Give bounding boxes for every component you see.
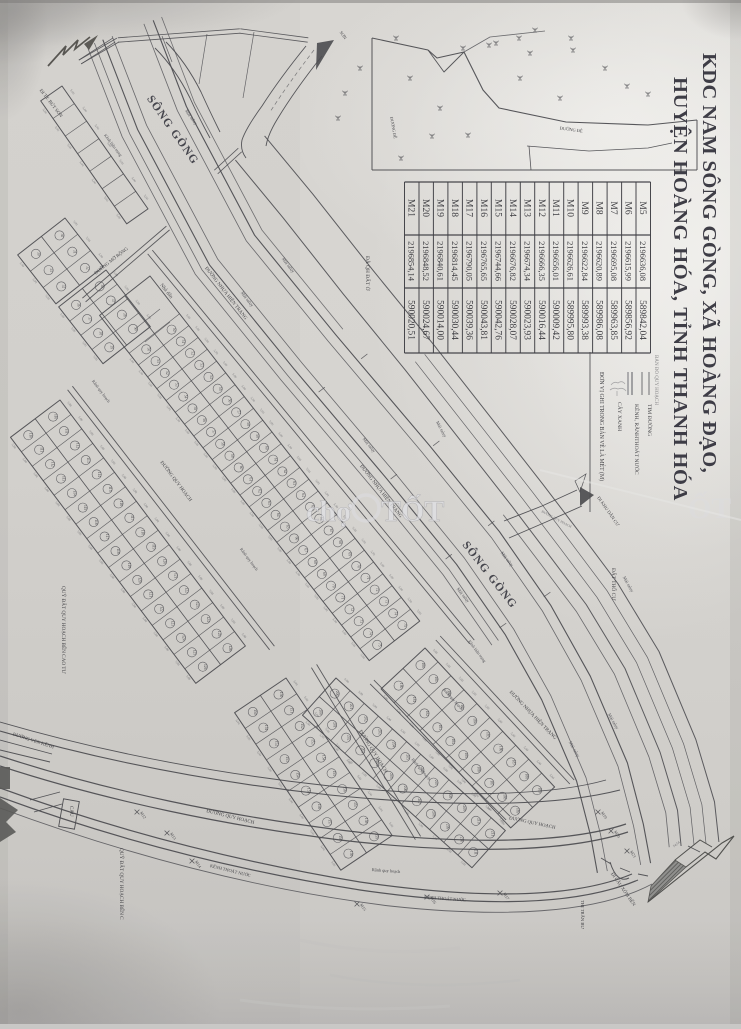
- svg-text:KDC NAM SÔNG GÒNG, XÃ HOÀNG ĐẠ: KDC NAM SÔNG GÒNG, XÃ HOÀNG ĐẠO,: [698, 53, 722, 473]
- svg-text:63: 63: [292, 481, 296, 485]
- svg-text:126: 126: [203, 664, 207, 670]
- svg-text:114: 114: [72, 490, 76, 495]
- svg-text:64: 64: [276, 513, 280, 517]
- svg-text:151: 151: [290, 708, 294, 714]
- svg-text:113: 113: [61, 476, 65, 481]
- svg-text:156: 156: [317, 804, 321, 810]
- svg-text:153: 153: [285, 756, 289, 762]
- svg-text:ĐÃ QH ĐẤT Ở: ĐÃ QH ĐẤT Ở: [364, 256, 372, 292]
- svg-text:75: 75: [403, 623, 407, 627]
- svg-text:115: 115: [83, 505, 87, 510]
- svg-text:M6: M6: [623, 201, 633, 214]
- svg-text:116: 116: [119, 501, 123, 506]
- svg-text:KÊNH, RÃNHTHOÁT NƯỚC: KÊNH, RÃNHTHOÁT NƯỚC: [633, 404, 641, 475]
- svg-text:159: 159: [349, 851, 353, 857]
- svg-text:590043,81: 590043,81: [478, 300, 488, 340]
- svg-text:589986,08: 589986,08: [594, 300, 604, 340]
- svg-text:CÂY XANH: CÂY XANH: [616, 402, 624, 431]
- svg-text:74: 74: [368, 631, 372, 635]
- svg-text:QUỸ ĐẤT QUY HOẠCH BẾN CAO TƯ: QUỸ ĐẤT QUY HOẠCH BẾN CAO TƯ: [60, 586, 68, 674]
- svg-text:211: 211: [474, 849, 478, 854]
- svg-text:37: 37: [111, 299, 115, 303]
- svg-text:157: 157: [353, 802, 357, 808]
- svg-text:124: 124: [206, 616, 210, 622]
- svg-text:121: 121: [173, 573, 177, 579]
- svg-text:202: 202: [347, 735, 351, 741]
- svg-text:M16: M16: [478, 199, 488, 217]
- svg-text:M11: M11: [550, 199, 560, 217]
- svg-text:M7: M7: [608, 201, 618, 214]
- svg-text:HUYỆN HOÀNG HÓA, TỈNH THANH HÓ: HUYỆN HOÀNG HÓA, TỈNH THANH HÓA: [669, 77, 693, 501]
- svg-text:2196695,08: 2196695,08: [609, 241, 618, 281]
- svg-text:2196620,89: 2196620,89: [595, 241, 604, 281]
- svg-text:184: 184: [473, 718, 477, 724]
- svg-text:200: 200: [318, 710, 322, 716]
- svg-text:70: 70: [357, 564, 361, 568]
- svg-text:30: 30: [36, 252, 40, 256]
- svg-text:TIM ĐƯỜNG: TIM ĐƯỜNG: [646, 404, 654, 436]
- svg-text:58: 58: [246, 422, 250, 426]
- svg-text:185: 185: [486, 732, 490, 738]
- svg-text:M19: M19: [435, 199, 445, 217]
- svg-text:71: 71: [341, 596, 345, 600]
- svg-text:205: 205: [406, 755, 410, 761]
- svg-text:207: 207: [434, 780, 438, 786]
- svg-text:590030,44: 590030,44: [449, 300, 459, 340]
- svg-text:187: 187: [512, 760, 516, 766]
- svg-text:54: 54: [184, 395, 188, 399]
- svg-text:123: 123: [171, 621, 175, 627]
- svg-text:112: 112: [75, 443, 79, 448]
- svg-text:72: 72: [375, 588, 379, 592]
- svg-text:590028,07: 590028,07: [507, 300, 517, 340]
- svg-text:189: 189: [516, 808, 520, 814]
- svg-text:590020,51: 590020,51: [406, 300, 416, 340]
- svg-text:67: 67: [304, 548, 308, 552]
- svg-text:2196626,61: 2196626,61: [566, 241, 575, 281]
- svg-text:73: 73: [359, 619, 363, 623]
- svg-text:2196676,82: 2196676,82: [508, 241, 517, 281]
- svg-text:69: 69: [347, 552, 351, 556]
- svg-text:113: 113: [86, 457, 90, 462]
- svg-text:590023,93: 590023,93: [521, 300, 531, 340]
- svg-text:589993,38: 589993,38: [579, 300, 589, 340]
- svg-text:56: 56: [227, 399, 231, 403]
- svg-text:590024,67: 590024,67: [420, 300, 430, 340]
- svg-text:37: 37: [88, 317, 92, 321]
- svg-text:60: 60: [264, 446, 268, 450]
- svg-text:M15: M15: [492, 199, 502, 217]
- svg-text:119: 119: [127, 563, 131, 568]
- svg-text:M17: M17: [463, 199, 473, 217]
- svg-text:589856,92: 589856,92: [623, 300, 633, 340]
- svg-text:BẢN ĐỒ QUY HOẠCH: BẢN ĐỒ QUY HOẠCH: [653, 355, 659, 405]
- svg-text:73: 73: [384, 600, 388, 604]
- svg-text:2196622,84: 2196622,84: [580, 241, 589, 282]
- svg-text:151: 151: [264, 725, 268, 731]
- svg-text:30: 30: [60, 234, 64, 238]
- svg-text:chợ: chợ: [306, 495, 353, 528]
- svg-text:2196848,52: 2196848,52: [421, 241, 430, 281]
- svg-text:52: 52: [190, 351, 194, 355]
- svg-text:50: 50: [147, 348, 151, 352]
- svg-text:211: 211: [490, 831, 494, 836]
- svg-text:39: 39: [110, 346, 114, 350]
- svg-text:157: 157: [328, 819, 332, 825]
- svg-text:201: 201: [349, 704, 353, 710]
- svg-text:53: 53: [174, 383, 178, 387]
- svg-text:154: 154: [321, 755, 325, 761]
- svg-text:57: 57: [211, 430, 215, 434]
- svg-text:62: 62: [258, 489, 262, 493]
- svg-text:116: 116: [94, 519, 98, 524]
- svg-text:111: 111: [40, 447, 44, 452]
- svg-text:2196674,34: 2196674,34: [522, 241, 531, 282]
- svg-text:60: 60: [239, 466, 243, 470]
- svg-text:181: 181: [412, 697, 416, 703]
- svg-text:206: 206: [403, 786, 407, 792]
- svg-text:70: 70: [331, 584, 335, 588]
- svg-text:121: 121: [149, 592, 153, 598]
- svg-text:32: 32: [85, 266, 89, 270]
- svg-text:31: 31: [73, 250, 77, 254]
- svg-text:64: 64: [301, 493, 305, 497]
- svg-text:112: 112: [51, 462, 55, 467]
- svg-text:61: 61: [248, 478, 252, 482]
- svg-text:M12: M12: [536, 199, 546, 217]
- svg-text:180: 180: [399, 683, 403, 689]
- svg-text:75: 75: [378, 643, 382, 647]
- svg-text:153: 153: [311, 739, 315, 745]
- svg-text:63: 63: [267, 501, 271, 505]
- svg-text:210: 210: [476, 818, 480, 824]
- svg-text:203: 203: [378, 729, 382, 735]
- svg-text:THỊ TRẤN BƯ: THỊ TRẤN BƯ: [580, 900, 585, 929]
- svg-text:M9: M9: [579, 201, 589, 214]
- svg-text:72: 72: [350, 608, 354, 612]
- svg-text:53: 53: [200, 363, 204, 367]
- svg-text:61: 61: [274, 458, 278, 462]
- svg-text:590039,36: 590039,36: [463, 300, 473, 340]
- svg-text:2196840,61: 2196840,61: [436, 241, 445, 281]
- svg-text:56: 56: [202, 418, 206, 422]
- svg-text:186: 186: [499, 746, 503, 752]
- svg-text:122: 122: [160, 606, 164, 612]
- svg-text:152: 152: [300, 723, 304, 729]
- svg-text:589963,85: 589963,85: [608, 300, 618, 340]
- svg-text:202: 202: [363, 716, 367, 722]
- svg-text:62: 62: [283, 470, 287, 474]
- svg-text:68: 68: [338, 541, 342, 545]
- svg-text:51: 51: [156, 359, 160, 363]
- svg-text:2196656,01: 2196656,01: [551, 241, 560, 281]
- svg-text:180: 180: [421, 663, 425, 669]
- svg-text:590042,76: 590042,76: [492, 300, 502, 340]
- svg-text:183: 183: [438, 725, 442, 731]
- svg-text:201: 201: [333, 722, 337, 728]
- svg-text:38: 38: [99, 331, 103, 335]
- svg-text:2196636,08: 2196636,08: [638, 241, 647, 281]
- svg-text:59: 59: [230, 454, 234, 458]
- svg-text:184: 184: [451, 739, 455, 745]
- svg-text:124: 124: [181, 635, 185, 641]
- svg-text:208: 208: [431, 811, 435, 817]
- svg-text:50: 50: [172, 328, 176, 332]
- svg-text:204: 204: [392, 742, 396, 748]
- svg-text:590016,44: 590016,44: [536, 300, 546, 340]
- svg-text:122: 122: [184, 588, 188, 594]
- svg-text:589995,80: 589995,80: [565, 300, 575, 340]
- svg-text:119: 119: [152, 544, 156, 549]
- svg-text:120: 120: [163, 559, 167, 565]
- svg-text:189: 189: [538, 788, 542, 794]
- svg-text:54: 54: [209, 375, 213, 379]
- svg-text:111: 111: [64, 428, 68, 433]
- svg-text:590014,00: 590014,00: [435, 300, 445, 340]
- svg-text:181: 181: [434, 676, 438, 682]
- svg-text:126: 126: [228, 645, 232, 651]
- svg-text:M10: M10: [565, 199, 575, 217]
- svg-text:110: 110: [29, 433, 33, 438]
- svg-text:589842,04: 589842,04: [637, 300, 647, 340]
- svg-text:68: 68: [313, 560, 317, 564]
- svg-text:M14: M14: [507, 199, 517, 217]
- svg-text:125: 125: [192, 650, 196, 656]
- svg-text:36: 36: [77, 303, 81, 307]
- svg-text:58: 58: [221, 442, 225, 446]
- svg-text:120: 120: [138, 577, 142, 583]
- svg-text:55: 55: [218, 387, 222, 391]
- svg-text:38: 38: [122, 313, 126, 317]
- svg-text:2196615,99: 2196615,99: [624, 241, 633, 281]
- svg-text:ĐƠN VỊ GHI TRONG BẢN VẼ LÀ MÉT: ĐƠN VỊ GHI TRONG BẢN VẼ LÀ MÉT (M): [598, 372, 606, 481]
- svg-text:M21: M21: [406, 199, 416, 217]
- svg-text:187: 187: [490, 780, 494, 786]
- svg-text:188: 188: [525, 774, 529, 780]
- svg-text:69: 69: [322, 572, 326, 576]
- svg-text:209: 209: [462, 805, 466, 811]
- svg-text:2196765,65: 2196765,65: [479, 241, 488, 281]
- svg-text:QUỸ ĐẤT QUY HOẠCH BẾN C: QUỸ ĐẤT QUY HOẠCH BẾN C: [118, 848, 126, 920]
- svg-text:66: 66: [295, 537, 299, 541]
- svg-text:123: 123: [195, 602, 199, 608]
- svg-text:182: 182: [425, 711, 429, 717]
- svg-text:115: 115: [108, 486, 112, 491]
- svg-text:51: 51: [181, 340, 185, 344]
- svg-text:185: 185: [464, 752, 468, 758]
- svg-text:31: 31: [49, 268, 53, 272]
- svg-text:2196790,05: 2196790,05: [464, 241, 473, 281]
- svg-text:154: 154: [296, 772, 300, 778]
- svg-text:209: 209: [445, 824, 449, 830]
- svg-text:2196854,14: 2196854,14: [407, 241, 416, 282]
- svg-text:117: 117: [105, 534, 109, 539]
- svg-text:M13: M13: [521, 199, 531, 217]
- svg-text:155: 155: [332, 771, 336, 777]
- svg-text:57: 57: [237, 411, 241, 415]
- svg-text:150: 150: [279, 692, 283, 698]
- svg-text:52: 52: [165, 371, 169, 375]
- svg-text:55: 55: [193, 407, 197, 411]
- svg-text:71: 71: [366, 576, 370, 580]
- svg-text:186: 186: [477, 766, 481, 772]
- svg-text:65: 65: [285, 525, 289, 529]
- svg-text:110: 110: [54, 414, 58, 419]
- svg-text:59: 59: [255, 434, 259, 438]
- svg-text:114: 114: [97, 472, 101, 477]
- svg-text:32: 32: [62, 285, 66, 289]
- svg-text:2196666,35: 2196666,35: [537, 241, 546, 281]
- svg-text:152: 152: [274, 741, 278, 747]
- svg-text:CẦU: CẦU: [68, 806, 74, 817]
- svg-text:M20: M20: [420, 199, 430, 217]
- svg-text:118: 118: [116, 548, 120, 553]
- svg-text:188: 188: [503, 794, 507, 800]
- svg-text:150: 150: [253, 709, 257, 715]
- svg-text:ĐẤT THỔ CƯ: ĐẤT THỔ CƯ: [610, 568, 618, 601]
- svg-text:TỐT: TỐT: [381, 494, 444, 528]
- svg-text:205: 205: [389, 773, 393, 779]
- svg-text:74: 74: [394, 612, 398, 616]
- svg-text:117: 117: [130, 515, 134, 520]
- svg-text:2196814,45: 2196814,45: [450, 241, 459, 281]
- svg-text:2196744,66: 2196744,66: [493, 241, 502, 281]
- svg-text:158: 158: [364, 818, 368, 824]
- svg-text:M5: M5: [637, 201, 647, 214]
- svg-text:M18: M18: [449, 199, 459, 217]
- svg-text:125: 125: [217, 631, 221, 637]
- svg-text:M8: M8: [594, 201, 604, 214]
- svg-text:118: 118: [141, 530, 145, 535]
- svg-text:67: 67: [329, 529, 333, 533]
- svg-text:590009,42: 590009,42: [550, 300, 560, 340]
